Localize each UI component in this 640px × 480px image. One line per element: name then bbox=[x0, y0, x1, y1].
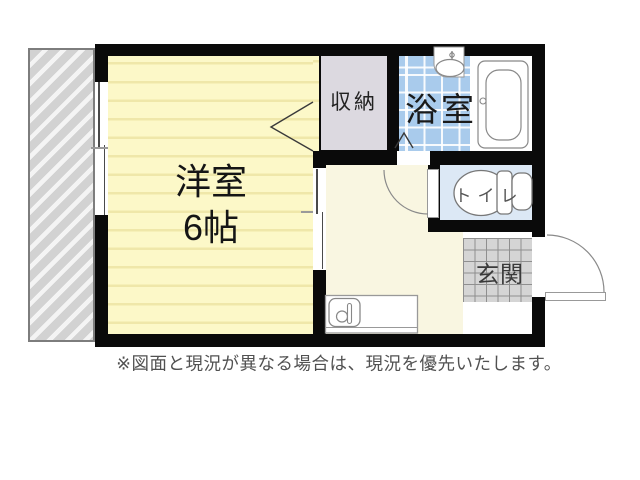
balcony-area bbox=[28, 48, 95, 342]
window-center-tick bbox=[91, 147, 108, 149]
main-room-area-extension bbox=[313, 56, 319, 151]
window-left bbox=[95, 82, 108, 215]
main-room-size: 6帖 bbox=[175, 205, 247, 251]
sliding-door-tick bbox=[301, 211, 313, 213]
sliding-door-line bbox=[316, 169, 318, 214]
bath-door-opening bbox=[397, 151, 430, 165]
hallway-east-area bbox=[428, 238, 463, 334]
entrance-label: 玄関 bbox=[476, 255, 524, 289]
bathroom-label: 浴室 bbox=[405, 83, 477, 131]
main-room-name: 洋室 bbox=[175, 159, 247, 205]
window-pane-line bbox=[104, 145, 106, 215]
sliding-door-line bbox=[322, 212, 324, 269]
toilet-label: トイレ bbox=[455, 182, 524, 207]
entrance-door-leaf bbox=[545, 292, 606, 301]
entrance-lower-area bbox=[463, 302, 532, 334]
window-pane-line bbox=[98, 82, 100, 149]
main-room-label: 洋室 6帖 bbox=[175, 159, 247, 251]
toilet-door-leaf bbox=[427, 169, 439, 218]
hallway-kitchen-area bbox=[326, 165, 428, 334]
room-sliding-door bbox=[313, 168, 326, 270]
bathtub-zone bbox=[470, 56, 532, 151]
entrance-door-opening bbox=[532, 237, 545, 297]
disclaimer-text: ※図面と現況が異なる場合は、現況を優先いたします。 bbox=[116, 351, 561, 376]
entrance-door-arc bbox=[547, 235, 604, 292]
closet-label: 収納 bbox=[330, 86, 378, 116]
